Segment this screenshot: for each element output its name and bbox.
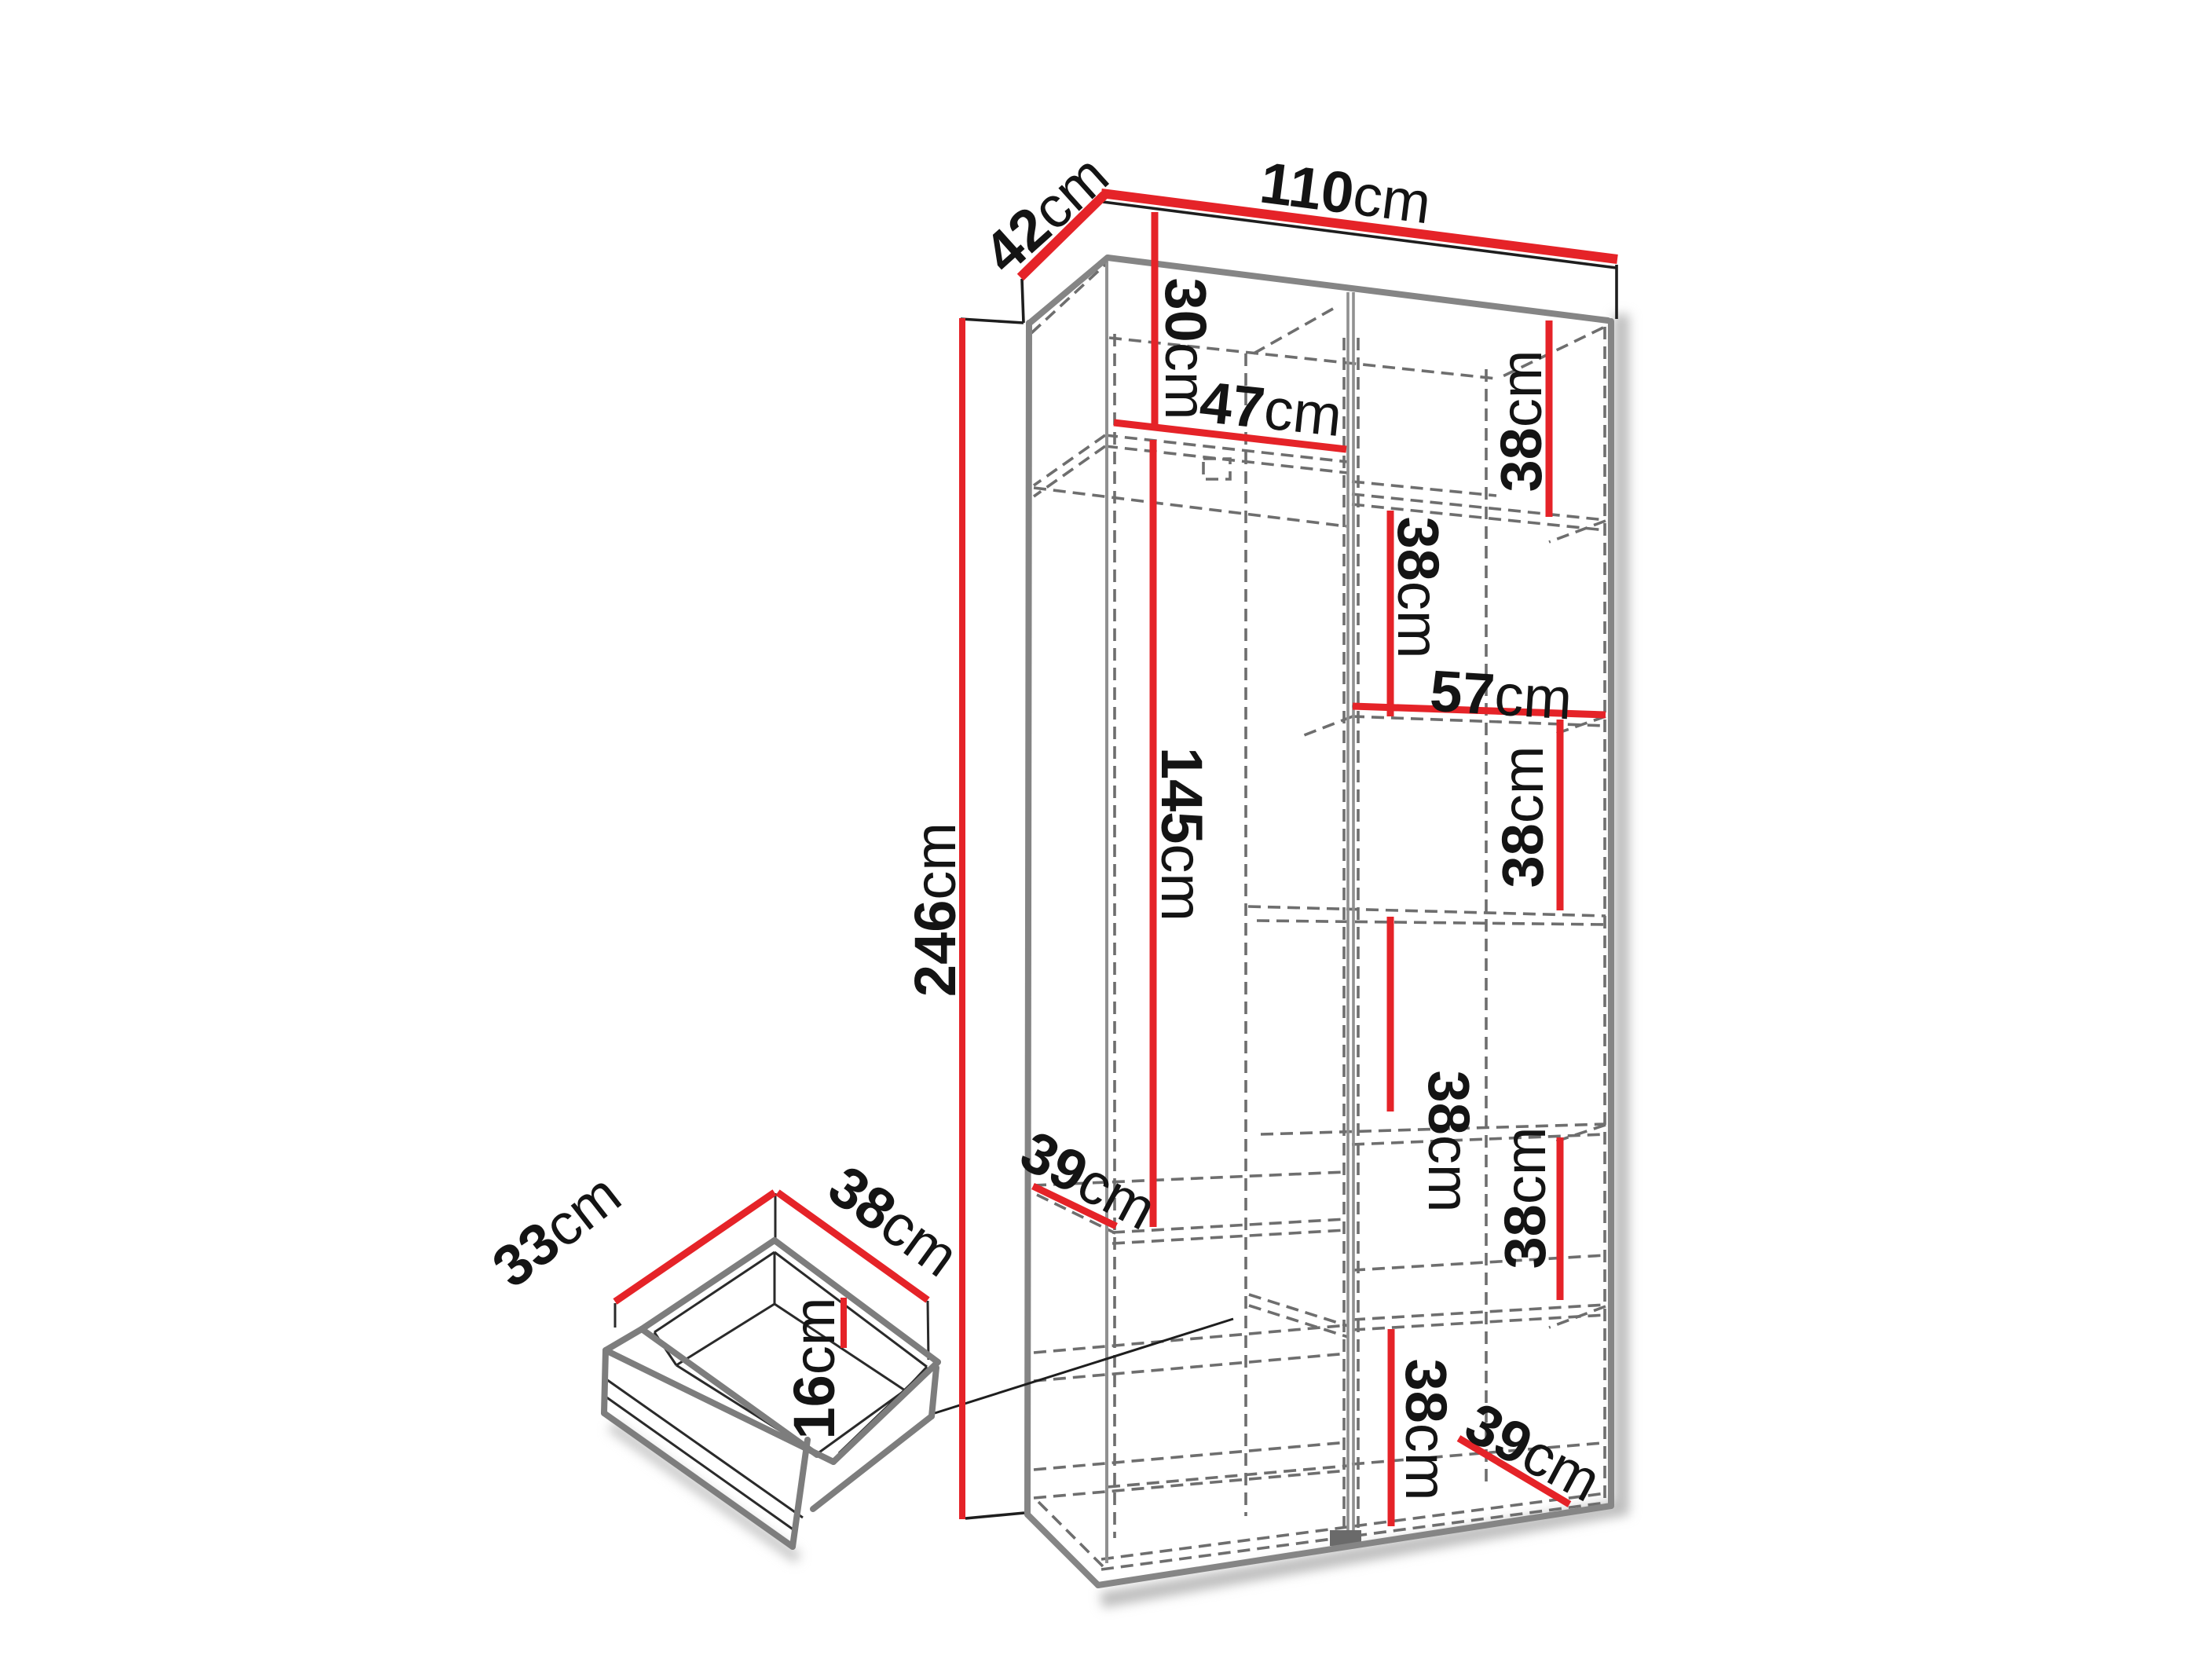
svg-text:38cm: 38cm [1490,746,1555,888]
svg-text:246cm: 246cm [903,822,968,997]
svg-text:38cm: 38cm [1492,1127,1558,1269]
svg-text:145cm: 145cm [1150,747,1215,921]
svg-text:57cm: 57cm [1428,657,1574,731]
svg-text:38cm: 38cm [1417,1071,1482,1213]
svg-text:38cm: 38cm [1394,1359,1459,1501]
svg-text:38cm: 38cm [1489,350,1554,493]
svg-text:38cm: 38cm [1386,517,1452,659]
svg-text:16cm: 16cm [782,1298,847,1440]
